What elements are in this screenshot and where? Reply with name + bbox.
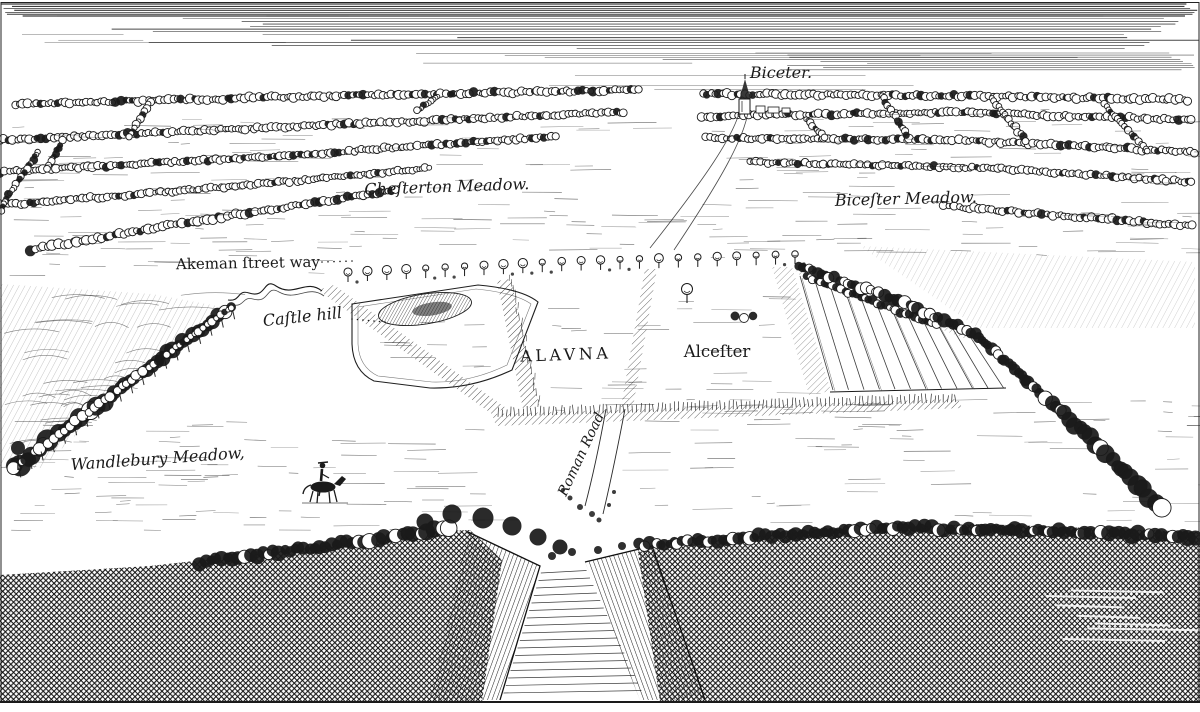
roadside-bush	[589, 511, 595, 517]
tree-crown	[713, 252, 721, 260]
hedge-connector	[414, 107, 421, 114]
tree-crown	[480, 261, 488, 269]
leader-dot	[333, 261, 335, 263]
hedge-connector	[44, 165, 51, 172]
leader-dot	[368, 320, 370, 322]
tree-crown	[402, 264, 411, 273]
label-alauna: ALAVNA	[519, 343, 612, 365]
tree-crown	[558, 257, 566, 265]
horizon-hedge	[635, 86, 642, 93]
foreground-tree	[553, 540, 567, 554]
leader-dot	[384, 321, 386, 323]
town-house	[756, 106, 765, 113]
tree-crown	[654, 254, 663, 263]
rider-torso	[321, 469, 322, 481]
tree-crown	[518, 258, 527, 267]
horizon-hedge	[1183, 97, 1191, 105]
hedgerow	[427, 165, 432, 170]
small-bush	[530, 272, 533, 275]
hedge-connector	[903, 132, 909, 138]
foreground-bush	[1188, 531, 1200, 545]
tree-crown	[499, 259, 508, 268]
rider-head	[320, 463, 326, 469]
hedgerow-bush	[105, 392, 115, 402]
hedgerow	[1188, 221, 1196, 229]
label-bicester-town: Biceter.	[749, 63, 812, 82]
tree-crown	[363, 266, 372, 275]
tree-crown	[733, 252, 741, 260]
label-akeman-street-way: Akeman ſtreet way	[175, 253, 321, 274]
small-bush	[550, 271, 553, 274]
foreground-bush	[618, 542, 626, 550]
hedge-connector	[126, 134, 132, 140]
small-bush	[355, 280, 358, 283]
label-bicester-meadow: Biceſter Meadow.	[834, 187, 977, 210]
small-bush	[783, 263, 786, 266]
leader-dot	[379, 321, 381, 323]
foreground-tree	[443, 505, 461, 523]
small-bush	[453, 275, 456, 278]
hedgerow	[619, 109, 627, 117]
roadside-bush	[597, 518, 602, 523]
tall-tree-crown	[11, 441, 25, 455]
hedgerow	[1187, 178, 1194, 185]
leader-dot	[351, 260, 353, 262]
leader-dot	[321, 261, 323, 263]
foreground-bush	[568, 548, 576, 556]
foreground-bank-right-shade	[638, 524, 1200, 702]
roadside-bush	[607, 503, 611, 507]
small-bush	[627, 268, 630, 271]
leader-dot	[339, 261, 341, 263]
tree-crown	[344, 268, 352, 276]
tree-crown	[382, 265, 391, 274]
foreground-tree	[530, 529, 546, 545]
hedgerow-bush	[228, 305, 234, 311]
small-bush	[433, 276, 436, 279]
small-bush	[511, 273, 514, 276]
leader-dot	[345, 260, 347, 262]
leader-dot	[327, 261, 329, 263]
hedgerow	[552, 133, 559, 140]
engraved-prospect-of-alauna-alcester: Biceter. Cheſterton Meadow. Biceſter Mea…	[0, 0, 1200, 712]
foreground-tree	[417, 514, 433, 530]
foreground-bush	[548, 552, 556, 560]
leader-dot	[362, 319, 364, 321]
rider-hat	[318, 462, 328, 463]
roadside-bush	[577, 504, 583, 510]
leader-dot	[351, 318, 353, 320]
tree-crown	[596, 256, 604, 264]
leader-dot	[357, 319, 359, 321]
tree-crown	[577, 257, 585, 265]
town-house	[782, 108, 790, 113]
hedgerow-tree	[1152, 498, 1171, 517]
label-alcester: Alceſter	[683, 342, 751, 361]
horse-body	[311, 482, 336, 493]
field-bush	[749, 312, 757, 320]
foreground-tree	[503, 517, 521, 535]
field-bush	[740, 314, 749, 323]
hedgerow	[241, 126, 249, 134]
leader-dot	[373, 320, 375, 322]
roadside-bush	[612, 490, 616, 494]
engraving-canvas: Biceter. Cheſterton Meadow. Biceſter Mea…	[0, 0, 1200, 712]
small-bush	[608, 268, 611, 271]
hedge-connector	[1144, 148, 1150, 154]
field-bush	[731, 312, 739, 320]
foreground-bush	[594, 546, 602, 554]
foreground-tree	[473, 508, 493, 528]
hedge-connector	[821, 134, 828, 141]
hedge-connector	[1022, 138, 1029, 145]
church-tower	[739, 99, 750, 114]
town-house	[768, 107, 779, 113]
